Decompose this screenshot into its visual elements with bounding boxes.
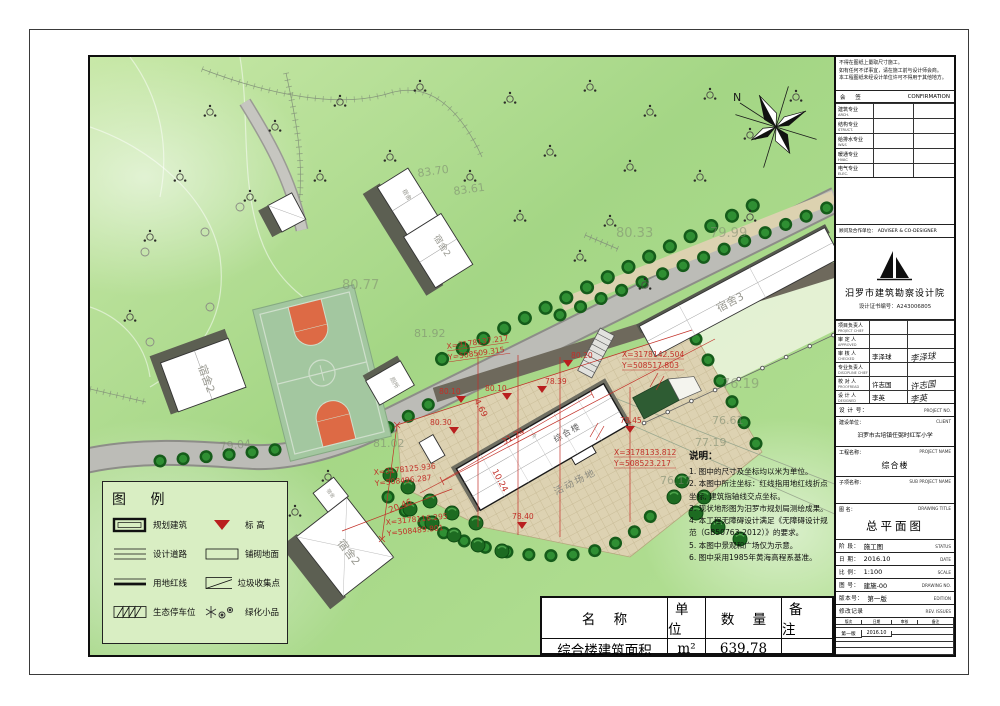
status-row: 阶 段： 施工图 STATUS bbox=[836, 540, 954, 553]
signature-row: 专业负责人DISCIPLINE CHIEF bbox=[836, 362, 954, 376]
notes: 说明： 1. 图中的尺寸及坐标均以米为单位。 2. 本图中所注坐标：红线指用地红… bbox=[689, 448, 834, 564]
drawing-sheet: 宿舍 宿舍2 宿舍2 bbox=[0, 0, 1000, 706]
edition-label: 版本号： bbox=[839, 594, 863, 602]
elevation: 81.92 bbox=[414, 327, 446, 340]
client-label: 建设单位： bbox=[839, 419, 864, 426]
revision-label: 修改记录 bbox=[839, 607, 863, 615]
confirmation-row: 建筑专业ARCH. bbox=[836, 103, 954, 118]
discipline-label-en: ARCH. bbox=[838, 113, 873, 117]
discipline-label-en: HVAC bbox=[838, 158, 873, 162]
confirmation-title: 会 签 bbox=[840, 93, 865, 101]
spot-level-value: 78.40 bbox=[512, 512, 534, 521]
elevation: 76.61 bbox=[712, 414, 744, 427]
drawing-no-label-en: DRAWING NO. bbox=[922, 583, 951, 588]
scale-label: 比 例： bbox=[839, 568, 860, 576]
table-cell-name: 综合楼建筑面积 bbox=[542, 639, 668, 655]
legend-label: 用地红线 bbox=[153, 577, 187, 589]
confirmation-title-en: CONFIRMATION bbox=[908, 94, 950, 100]
legend-label: 设计道路 bbox=[153, 548, 187, 560]
person-name: 李泽球 bbox=[872, 351, 907, 361]
client-field: 建设单位： CLIENT 汨罗市古培镇任弼时红军小学 bbox=[836, 417, 954, 447]
elevation: 79.99 bbox=[710, 226, 747, 241]
date-label: 日 期： bbox=[839, 555, 860, 563]
project-no-row: 设 计 号： PROJECT NO. bbox=[836, 404, 954, 417]
legend-label: 铺砌地面 bbox=[245, 548, 279, 560]
role-label: 专业负责人 bbox=[838, 364, 869, 371]
project-no-label: 设 计 号： bbox=[839, 406, 868, 414]
legend-label: 生态停车位 bbox=[153, 606, 196, 618]
elevation: 80.77 bbox=[342, 278, 379, 293]
table-cell-unit: m² bbox=[668, 639, 706, 655]
legend-label: 规划建筑 bbox=[153, 519, 187, 531]
note-item: 6. 图中采用1985年黄海高程系基准。 bbox=[689, 552, 834, 564]
note-item: 5. 本图中景观和广场仅为示意。 bbox=[689, 540, 834, 552]
project-no-label-en: PROJECT NO. bbox=[924, 408, 951, 413]
legend-item-site-red-line: 用地红线 bbox=[112, 575, 204, 591]
rev-col-header: 日期 bbox=[862, 620, 892, 625]
garbage-point-icon bbox=[204, 575, 232, 591]
legend-title: 图 例 bbox=[112, 489, 278, 509]
role-label: 设 计 人 bbox=[838, 392, 869, 399]
client-label-en: CLIENT bbox=[936, 419, 951, 426]
planned-building-icon bbox=[112, 517, 148, 533]
legend-label: 垃圾收集点 bbox=[237, 577, 280, 589]
signature bbox=[910, 339, 954, 344]
design-institute: 汨罗市建筑勘察设计院 设计证书编号：A243006805 bbox=[836, 238, 954, 320]
status-value: 施工图 bbox=[864, 541, 884, 551]
rev-cell bbox=[918, 634, 953, 635]
elevation: 76.19 bbox=[722, 377, 759, 392]
signature-row: 项目负责人PROJECT CHIEF bbox=[836, 320, 954, 334]
title-block: 不得在图纸上量取尺寸施工。 如有任何不详事宜，请在施工前与设计师会商。 本工程图… bbox=[834, 57, 954, 655]
greenery-icon bbox=[204, 604, 240, 620]
role-label: 审 核 人 bbox=[838, 350, 869, 357]
status-label: 阶 段： bbox=[839, 542, 860, 550]
note-item: 2. 本图中所注坐标：红线指用地红线折点坐标, 建筑指轴线交点坐标。 bbox=[689, 478, 834, 503]
status-label-en: STATUS bbox=[935, 544, 951, 549]
rev-cell: 2016.10 bbox=[862, 631, 892, 637]
date-row: 日 期： 2016.10 DATE bbox=[836, 553, 954, 566]
coord-x: X=3178142.504 bbox=[622, 350, 684, 359]
drawing-no-value: 建施-00 bbox=[864, 580, 888, 590]
date-value: 2016.10 bbox=[864, 555, 891, 563]
legend-item-greenery: 绿化小品 bbox=[204, 604, 280, 620]
client-value: 汨罗市古培镇任弼时红军小学 bbox=[839, 430, 951, 439]
table-header-unit: 单 位 bbox=[668, 598, 706, 639]
spot-elevation-icon bbox=[204, 517, 240, 533]
scale-value: 1:100 bbox=[864, 568, 883, 576]
spot-level-value: 80.20 bbox=[571, 351, 593, 360]
drawing-title-field: 图 名： DRAWING TITLE 总平面图 bbox=[836, 504, 954, 540]
legend: 图 例 规划建筑 标 高 设计道路 bbox=[102, 481, 288, 644]
table-cell-remark bbox=[782, 639, 832, 655]
discipline-label: 电气专业 bbox=[838, 165, 873, 172]
drawing-title-label: 图 名： bbox=[839, 506, 856, 513]
project-name-label: 工程名称： bbox=[839, 449, 864, 456]
elevation: 76.17 bbox=[660, 474, 692, 487]
coord-y: Y=508517.803 bbox=[621, 361, 679, 370]
note-item: 1. 图中的尺寸及坐标均以米为单位。 bbox=[689, 466, 834, 478]
sub-project-field: 子项名称： SUB PROJECT NAME bbox=[836, 477, 954, 504]
cooperation-label: 顾问及合作单位： bbox=[839, 228, 876, 234]
rev-cell bbox=[892, 634, 918, 635]
legend-item-eco-parking: 生态停车位 bbox=[112, 604, 204, 620]
signature bbox=[910, 325, 954, 330]
revision-label-en: REV. ISSUES bbox=[926, 609, 951, 614]
discipline-label: 给排水专业 bbox=[838, 136, 873, 143]
discipline-label: 建筑专业 bbox=[838, 106, 873, 113]
role-label-en: CHECKED bbox=[838, 357, 869, 361]
role-label-en: APPROVED bbox=[838, 343, 869, 347]
coord-x: X=3178133.812 bbox=[614, 448, 676, 457]
confirmation-row: 给排水专业W&S bbox=[836, 133, 954, 148]
signature: 李泽球 bbox=[909, 348, 954, 362]
paved-ground-icon bbox=[204, 546, 240, 562]
role-label: 校 对 人 bbox=[838, 378, 869, 385]
signature-row: 设 计 人DESIGNED 李英 李英 bbox=[836, 390, 954, 404]
institute-logo bbox=[874, 248, 916, 284]
table-cell-qty: 639.78 bbox=[706, 639, 782, 655]
project-name-value: 综合楼 bbox=[839, 460, 951, 471]
spacer bbox=[836, 178, 954, 225]
edition-row: 版本号： 第一版 EDITION bbox=[836, 592, 954, 605]
date-label-en: DATE bbox=[940, 557, 951, 562]
table-header-qty: 数 量 bbox=[706, 598, 782, 639]
edition-label-en: EDITION bbox=[934, 596, 951, 601]
drawing-title-value: 总平面图 bbox=[839, 518, 951, 534]
legend-label: 绿化小品 bbox=[245, 606, 279, 618]
legend-label: 标 高 bbox=[245, 519, 265, 531]
rev-cell: 第一版 bbox=[836, 630, 862, 638]
edition-value: 第一版 bbox=[867, 593, 887, 603]
discipline-label: 暖通专业 bbox=[838, 151, 873, 158]
elevation: 79.04 bbox=[219, 437, 252, 453]
role-label: 项目负责人 bbox=[838, 322, 869, 329]
confirmation-header: 会 签 CONFIRMATION bbox=[836, 91, 954, 103]
spot-level-value: 80.10 bbox=[485, 384, 507, 393]
role-label-en: DISCIPLINE CHIEF bbox=[838, 371, 869, 375]
legend-item-paved-ground: 铺砌地面 bbox=[204, 546, 280, 562]
table-header-remark: 备 注 bbox=[782, 598, 832, 639]
drawing-no-row: 图 号： 建施-00 DRAWING NO. bbox=[836, 579, 954, 592]
discipline-label-en: W&S bbox=[838, 143, 873, 147]
spot-level-value: 80.10 bbox=[439, 387, 461, 396]
rev-col-header: 审核 bbox=[892, 620, 918, 625]
drawing-frame: 宿舍 宿舍2 宿舍2 bbox=[88, 55, 956, 657]
signature bbox=[910, 367, 954, 372]
signature: 李英 bbox=[909, 390, 954, 403]
confirmation-row: 暖通专业HVAC bbox=[836, 148, 954, 163]
eco-parking-icon bbox=[112, 604, 148, 620]
role-label: 审 定 人 bbox=[838, 336, 869, 343]
elevation: 81.02 bbox=[373, 437, 405, 450]
role-label-en: PROJECT CHIEF bbox=[838, 329, 869, 333]
rev-col-header: 备注 bbox=[918, 620, 953, 625]
elevation: 80.33 bbox=[616, 226, 653, 241]
signature-row: 审 核 人CHECKED 李泽球 李泽球 bbox=[836, 348, 954, 362]
legend-item-spot-elevation: 标 高 bbox=[204, 517, 280, 533]
legend-item-planned-building: 规划建筑 bbox=[112, 517, 204, 533]
legend-item-garbage-point: 垃圾收集点 bbox=[204, 575, 280, 591]
table-header-name: 名 称 bbox=[542, 598, 668, 639]
legend-item-designed-road: 设计道路 bbox=[112, 546, 204, 562]
drawing-no-label: 图 号： bbox=[839, 581, 860, 589]
person-name: 李英 bbox=[872, 392, 907, 402]
scale-row: 比 例： 1:100 SCALE bbox=[836, 566, 954, 579]
site-plan-map: 宿舍 宿舍2 宿舍2 bbox=[90, 57, 834, 655]
confirmation-row: 电气专业ELEC. bbox=[836, 163, 954, 178]
notes-title: 说明： bbox=[689, 448, 834, 462]
spot-level-value: 80.30 bbox=[430, 418, 452, 427]
sub-project-label-en: SUB PROJECT NAME bbox=[909, 479, 951, 486]
sub-project-label: 子项名称： bbox=[839, 479, 864, 486]
role-label-en: DESIGNED bbox=[838, 399, 869, 403]
note-item: 3. 现状地形图为汨罗市规划局测绘成果。 bbox=[689, 503, 834, 515]
signature-row: 审 定 人APPROVED bbox=[836, 334, 954, 348]
note-item: 4. 本工程无障碍设计满足《无障碍设计规范（GB50763-2012）》的要求。 bbox=[689, 515, 834, 540]
area-table: 名 称 单 位 数 量 备 注 综合楼建筑面积 m² 639.78 bbox=[540, 596, 834, 655]
discipline-label-en: STRUCT. bbox=[838, 128, 873, 132]
warning-line: 本工程图纸未经设计单位许可不得用于其他地方。 bbox=[839, 75, 951, 83]
institute-name: 汨罗市建筑勘察设计院 bbox=[845, 286, 945, 299]
discipline-label: 结构专业 bbox=[838, 121, 873, 128]
cooperation-row: 顾问及合作单位： ADVISER & CO-DESIGNER bbox=[836, 225, 954, 238]
coord-y: Y=508523.217 bbox=[613, 459, 671, 468]
spot-level-value: 78.39 bbox=[545, 377, 567, 386]
signature-row: 校 对 人PROOFREAD 许志国 许志国 bbox=[836, 376, 954, 390]
institute-license: 设计证书编号：A243006805 bbox=[859, 302, 931, 310]
confirmation-row: 结构专业STRUCT. bbox=[836, 118, 954, 133]
person-name: 许志国 bbox=[872, 379, 907, 389]
warning-notes: 不得在图纸上量取尺寸施工。 如有任何不详事宜，请在施工前与设计师会商。 本工程图… bbox=[836, 57, 954, 91]
revision-header-row: 修改记录 REV. ISSUES bbox=[836, 605, 954, 618]
revision-table: 版次 日期 审核 备注 第一版 2016.10 bbox=[836, 618, 954, 655]
north-label: N bbox=[733, 91, 741, 104]
rev-col-header: 版次 bbox=[836, 620, 862, 625]
discipline-label-en: ELEC. bbox=[838, 172, 873, 176]
site-red-line-icon bbox=[112, 575, 148, 591]
warning-line: 不得在图纸上量取尺寸施工。 bbox=[839, 60, 951, 68]
signature: 许志国 bbox=[909, 376, 954, 390]
cooperation-value: ADVISER & CO-DESIGNER bbox=[878, 229, 937, 234]
designed-road-icon bbox=[112, 546, 148, 562]
drawing-title-label-en: DRAWING TITLE bbox=[918, 506, 951, 513]
role-label-en: PROOFREAD bbox=[838, 385, 869, 389]
project-name-label-en: PROJECT NAME bbox=[919, 449, 951, 456]
spot-level-value: 78.45 bbox=[620, 416, 642, 425]
project-name-field: 工程名称： PROJECT NAME 综合楼 bbox=[836, 447, 954, 477]
scale-label-en: SCALE bbox=[938, 570, 951, 575]
